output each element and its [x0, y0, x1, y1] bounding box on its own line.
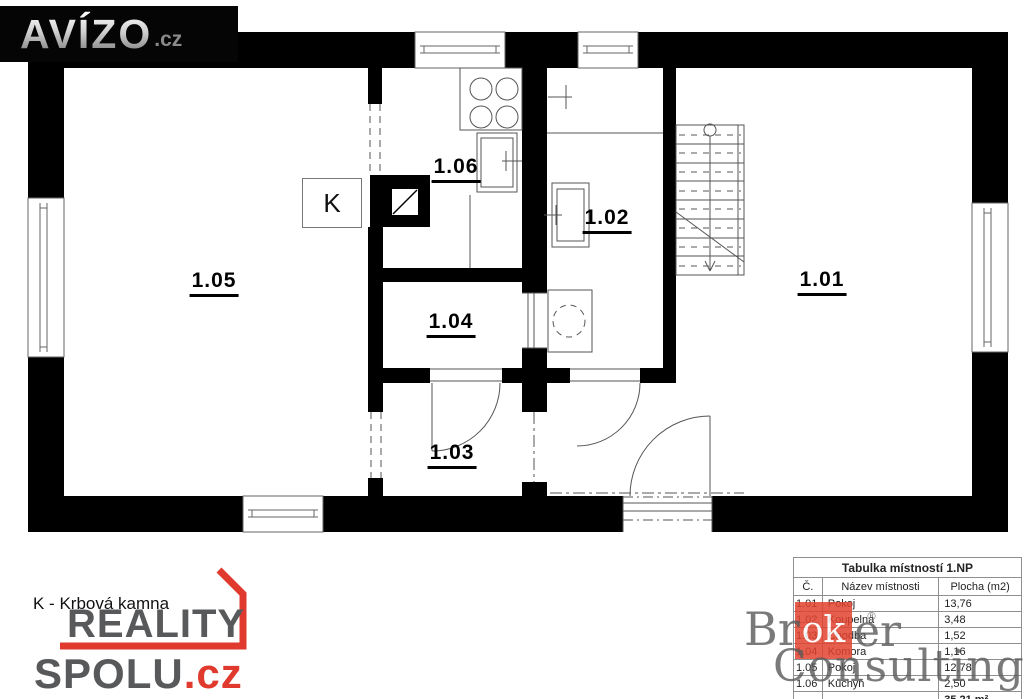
col-header-number: Č.	[794, 578, 823, 596]
room-label-1-05: 1.05	[190, 269, 239, 297]
room-label-1-06: 1.06	[432, 155, 481, 183]
kitchen-sink	[470, 133, 522, 268]
room-label-1-04: 1.04	[427, 310, 476, 338]
opening-lines	[534, 412, 744, 493]
window-top-bathroom	[578, 32, 638, 68]
window-bottom	[243, 496, 323, 532]
room-table-total-row: 35,21 m²	[794, 692, 1022, 699]
reality-spolu-tld: .cz	[184, 650, 243, 697]
reality-spolu-line2: SPOLU.cz	[34, 650, 243, 698]
room-table-total: 35,21 m²	[939, 692, 1022, 699]
stair-direction-arrow	[704, 124, 716, 271]
door-pantry-hall	[430, 369, 502, 451]
room-table-header-row: Č. Název místnosti Plocha (m2)	[794, 578, 1022, 596]
col-header-name: Název místnosti	[822, 578, 938, 596]
broker-watermark-registered: ®	[866, 610, 877, 623]
avizo-logo-tld: .cz	[154, 28, 182, 52]
empty-cell	[794, 692, 823, 699]
door-bath-entry	[570, 369, 640, 446]
room-label-1-03: 1.03	[428, 441, 477, 469]
fireplace-stove-letter: K	[323, 188, 340, 219]
floorplan-page: 1.05 1.06 1.02 1.04 1.03 1.01 K AVÍZO .c…	[0, 0, 1024, 699]
avizo-logo-text: AVÍZO	[20, 11, 152, 58]
empty-cell	[822, 692, 938, 699]
entrance-door	[623, 416, 712, 532]
room-area: 13,76	[939, 596, 1022, 612]
window-right	[972, 203, 1008, 352]
fireplace-legend: K - Krbová kamna	[33, 594, 169, 614]
interior-walls	[368, 68, 676, 496]
room-table-title-row: Tabulka místností 1.NP	[794, 558, 1022, 578]
col-header-area: Plocha (m2)	[939, 578, 1022, 596]
door-pantry-bath	[522, 293, 547, 348]
tap-icon	[548, 85, 572, 109]
room-area: 3,48	[939, 612, 1022, 628]
fireplace-stove-marker: K	[302, 178, 362, 228]
staircase	[676, 124, 744, 275]
washing-machine	[548, 290, 592, 352]
broker-watermark-consulting: Consulting	[773, 641, 1024, 692]
window-left	[28, 198, 64, 357]
kitchen-stove	[460, 68, 522, 130]
reality-spolu-line2-text: SPOLU	[34, 650, 184, 697]
room-table-title: Tabulka místností 1.NP	[794, 558, 1022, 578]
chimney	[370, 175, 430, 227]
avizo-logo: AVÍZO .cz	[0, 6, 238, 62]
window-top-kitchen	[415, 32, 505, 68]
room-label-1-01: 1.01	[798, 268, 847, 296]
room-label-1-02: 1.02	[583, 206, 632, 234]
